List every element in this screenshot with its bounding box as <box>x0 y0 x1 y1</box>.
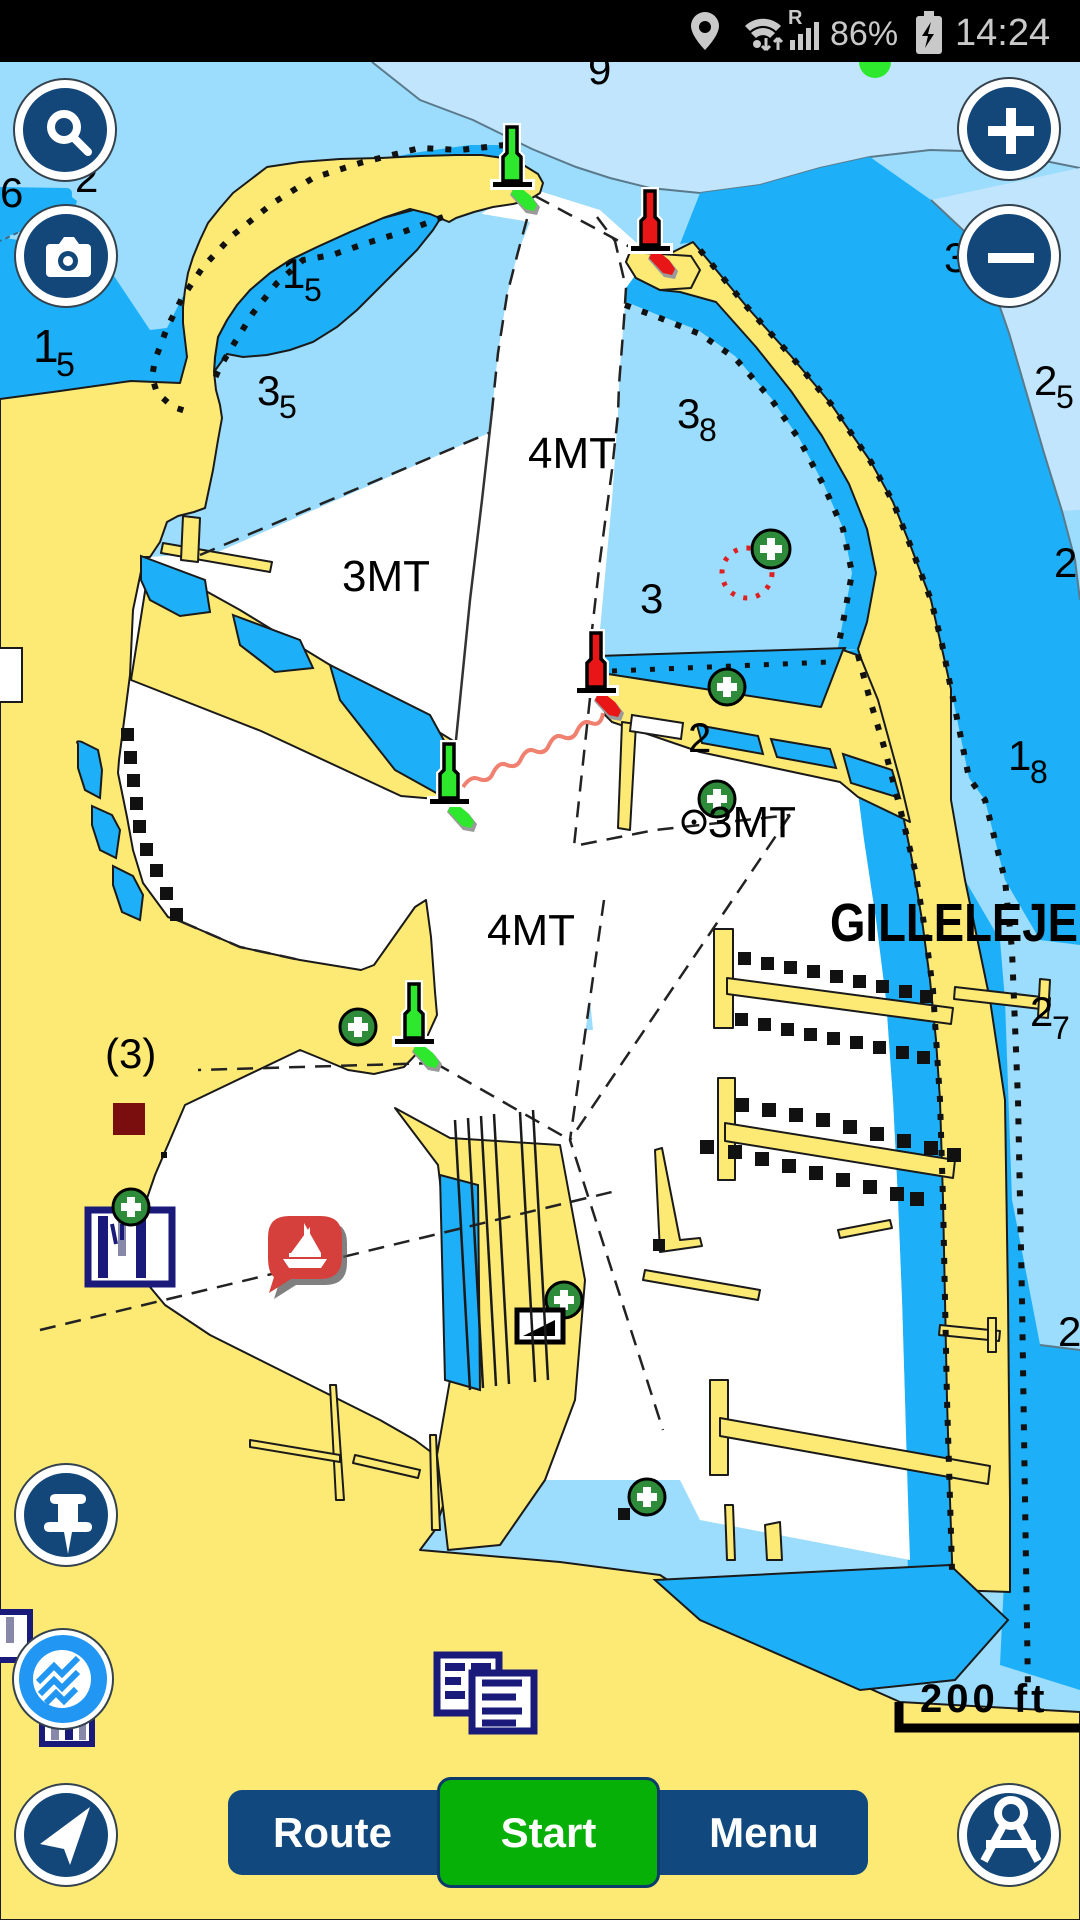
svg-text:2: 2 <box>1034 357 1057 404</box>
svg-text:5: 5 <box>56 346 75 384</box>
svg-text:86%: 86% <box>830 15 898 53</box>
svg-text:2: 2 <box>1030 988 1053 1035</box>
svg-text:200 ft: 200 ft <box>920 1677 1049 1721</box>
svg-text:3MT: 3MT <box>708 798 796 847</box>
svg-text:3: 3 <box>640 575 663 622</box>
svg-text:4MT: 4MT <box>487 906 575 955</box>
svg-text:(3): (3) <box>105 1030 156 1077</box>
svg-text:2: 2 <box>1058 1308 1080 1355</box>
svg-text:3: 3 <box>677 390 700 437</box>
svg-text:3MT: 3MT <box>342 552 430 601</box>
svg-text:5: 5 <box>1056 379 1074 415</box>
svg-text:7: 7 <box>1052 1010 1070 1046</box>
svg-text:2: 2 <box>688 714 711 761</box>
svg-text:R: R <box>788 7 803 29</box>
svg-text:4MT: 4MT <box>528 429 616 478</box>
svg-text:2: 2 <box>1054 539 1077 586</box>
svg-text:6: 6 <box>0 169 23 216</box>
svg-text:1: 1 <box>282 250 305 297</box>
svg-text:1: 1 <box>1008 732 1031 779</box>
svg-text:14:24: 14:24 <box>955 12 1050 54</box>
svg-text:8: 8 <box>1030 754 1048 790</box>
svg-text:5: 5 <box>304 272 322 308</box>
svg-text:GILLELEJE: GILLELEJE <box>830 893 1078 953</box>
svg-text:8: 8 <box>699 412 717 448</box>
svg-text:5: 5 <box>279 389 297 425</box>
svg-text:1: 1 <box>33 320 59 372</box>
svg-text:3: 3 <box>257 367 280 414</box>
